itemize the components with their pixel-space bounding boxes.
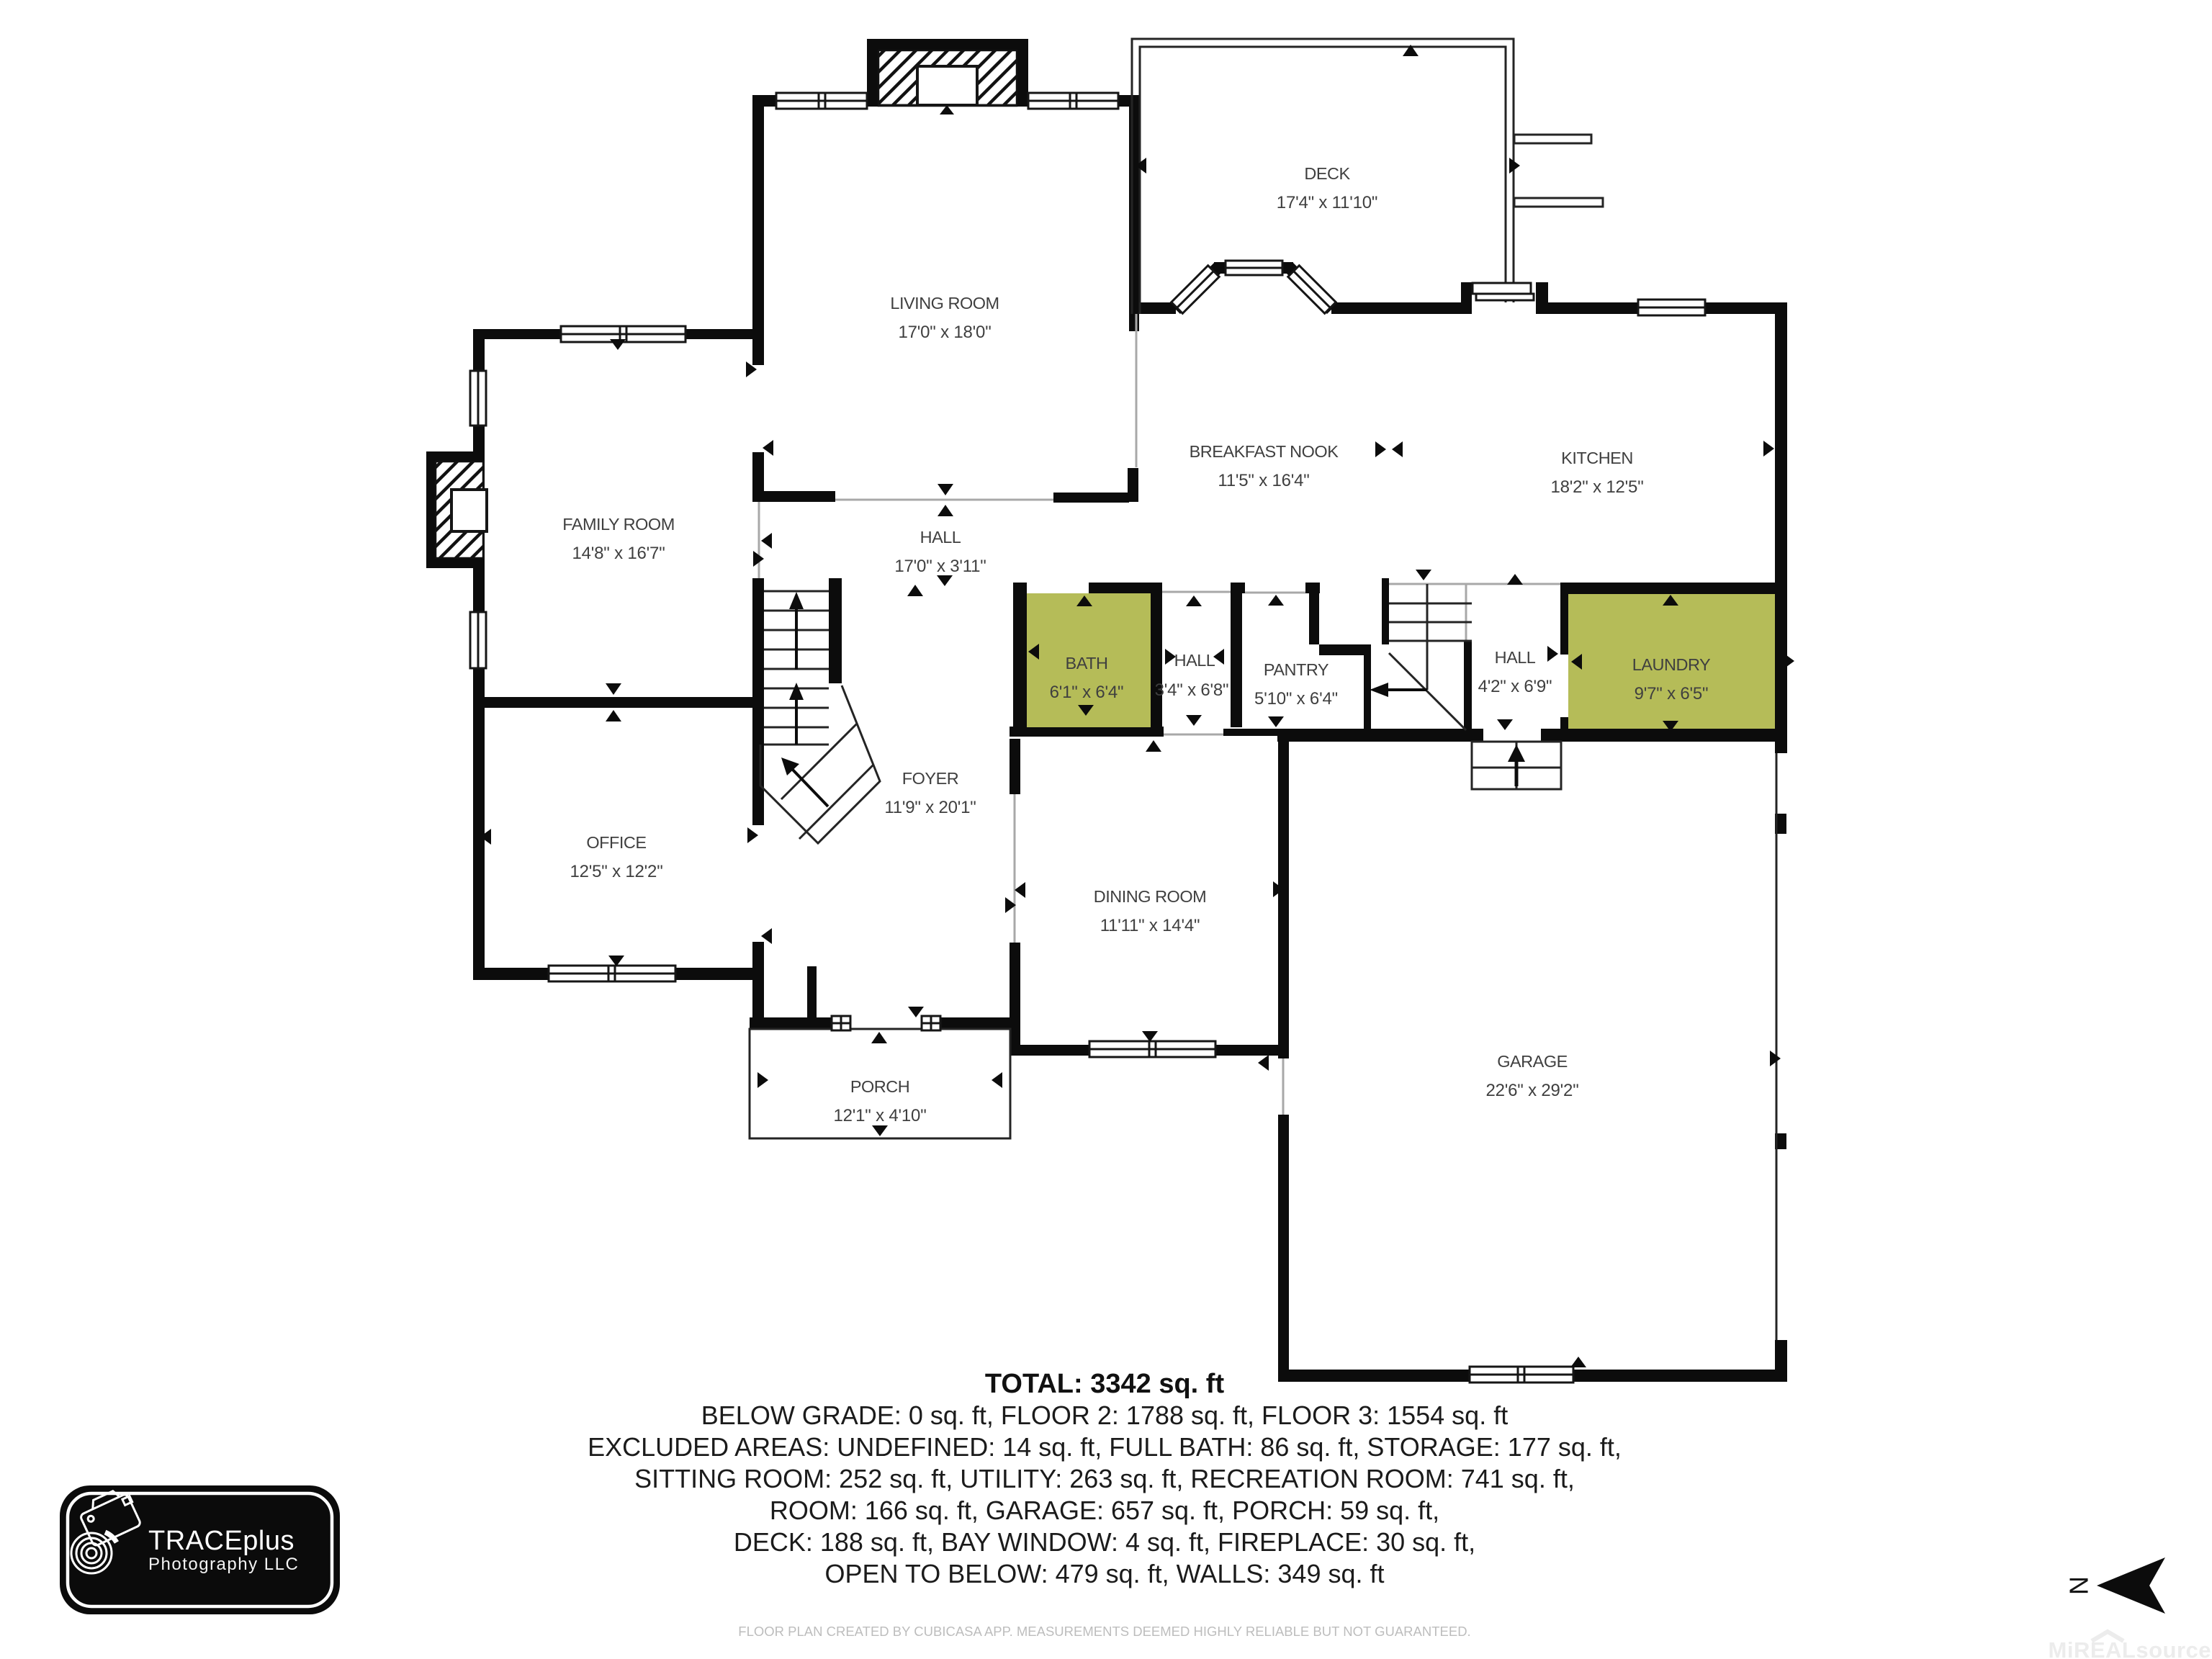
svg-text:5'10" x 6'4": 5'10" x 6'4" — [1254, 689, 1338, 709]
svg-text:9'7" x 6'5": 9'7" x 6'5" — [1635, 684, 1709, 703]
svg-text:SITTING ROOM: 252 sq. ft, UTIL: SITTING ROOM: 252 sq. ft, UTILITY: 263 s… — [634, 1464, 1575, 1493]
svg-text:HALL: HALL — [920, 528, 961, 547]
svg-text:22'6" x 29'2": 22'6" x 29'2" — [1485, 1081, 1578, 1100]
svg-text:BATH: BATH — [1066, 654, 1108, 673]
svg-text:Photography LLC: Photography LLC — [148, 1555, 299, 1574]
svg-text:17'0" x 3'11": 17'0" x 3'11" — [894, 557, 986, 576]
svg-text:17'0" x 18'0": 17'0" x 18'0" — [898, 323, 991, 342]
svg-text:12'1" x 4'10": 12'1" x 4'10" — [833, 1106, 926, 1125]
svg-text:6'1" x 6'4": 6'1" x 6'4" — [1050, 683, 1124, 702]
svg-text:DECK: DECK — [1304, 164, 1350, 183]
svg-text:4'2" x 6'9": 4'2" x 6'9" — [1478, 677, 1552, 696]
svg-text:TOTAL: 3342 sq. ft: TOTAL: 3342 sq. ft — [985, 1369, 1225, 1399]
svg-text:FAMILY ROOM: FAMILY ROOM — [562, 515, 675, 534]
svg-text:11'9" x 20'1": 11'9" x 20'1" — [884, 798, 976, 817]
svg-text:HALL: HALL — [1495, 648, 1536, 667]
svg-text:DECK: 188 sq. ft, BAY WINDOW:: DECK: 188 sq. ft, BAY WINDOW: 4 sq. ft, … — [734, 1527, 1475, 1557]
svg-text:3'4" x 6'8": 3'4" x 6'8" — [1155, 680, 1229, 700]
svg-text:KITCHEN: KITCHEN — [1561, 449, 1633, 467]
svg-text:11'5" x 16'4": 11'5" x 16'4" — [1218, 471, 1309, 490]
svg-text:OPEN TO BELOW: 479 sq. ft, WAL: OPEN TO BELOW: 479 sq. ft, WALLS: 349 sq… — [824, 1559, 1384, 1588]
svg-text:ROOM: 166 sq. ft, GARAGE: 657: ROOM: 166 sq. ft, GARAGE: 657 sq. ft, PO… — [770, 1496, 1439, 1525]
svg-text:FLOOR PLAN CREATED BY CUBICASA: FLOOR PLAN CREATED BY CUBICASA APP. MEAS… — [738, 1624, 1470, 1639]
svg-text:HALL: HALL — [1174, 651, 1215, 670]
svg-text:14'8" x 16'7": 14'8" x 16'7" — [572, 544, 665, 563]
svg-text:PANTRY: PANTRY — [1264, 660, 1329, 679]
svg-text:MiREALsource: MiREALsource — [2049, 1637, 2211, 1659]
svg-text:EXCLUDED AREAS: UNDEFINED: 14: EXCLUDED AREAS: UNDEFINED: 14 sq. ft, FU… — [588, 1432, 1622, 1462]
svg-text:BELOW GRADE: 0 sq. ft, FLOOR 2: BELOW GRADE: 0 sq. ft, FLOOR 2: 1788 sq.… — [701, 1401, 1508, 1430]
svg-text:11'11" x 14'4": 11'11" x 14'4" — [1100, 916, 1200, 935]
svg-text:TRACEplus: TRACEplus — [148, 1526, 295, 1556]
svg-text:DINING ROOM: DINING ROOM — [1094, 887, 1206, 906]
svg-text:BREAKFAST NOOK: BREAKFAST NOOK — [1190, 442, 1339, 461]
svg-text:17'4" x 11'10": 17'4" x 11'10" — [1277, 193, 1377, 212]
svg-text:LIVING ROOM: LIVING ROOM — [890, 294, 999, 313]
svg-text:LAUNDRY: LAUNDRY — [1632, 655, 1711, 674]
svg-text:N: N — [2064, 1576, 2093, 1595]
svg-text:GARAGE: GARAGE — [1497, 1052, 1568, 1071]
svg-text:12'5" x 12'2": 12'5" x 12'2" — [570, 862, 662, 881]
svg-text:18'2" x 12'5": 18'2" x 12'5" — [1550, 477, 1643, 497]
svg-text:FOYER: FOYER — [902, 769, 958, 788]
svg-text:OFFICE: OFFICE — [586, 833, 646, 852]
svg-text:PORCH: PORCH — [850, 1077, 909, 1096]
